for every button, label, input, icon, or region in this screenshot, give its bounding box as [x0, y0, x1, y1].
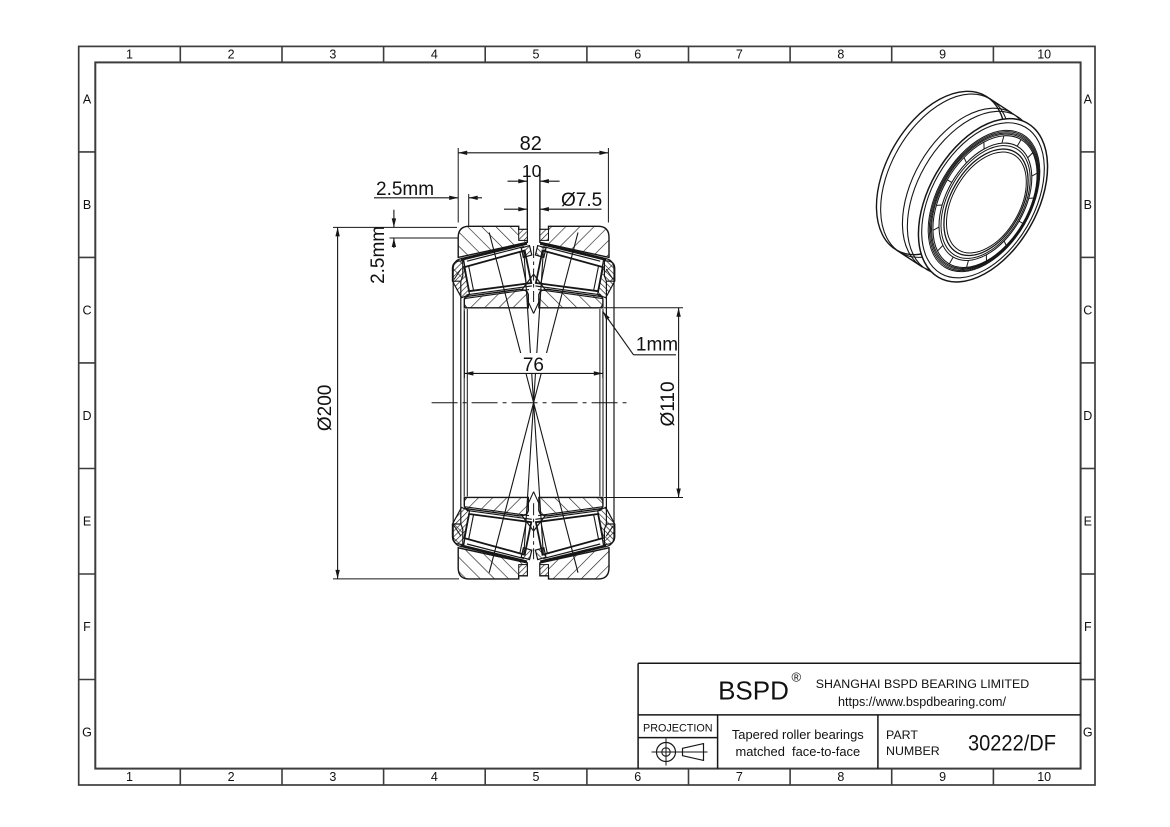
- svg-text:10: 10: [1037, 48, 1051, 62]
- svg-text:1: 1: [126, 770, 133, 784]
- svg-text:https://www.bspdbearing.com/: https://www.bspdbearing.com/: [838, 695, 1006, 709]
- svg-text:3: 3: [329, 48, 336, 62]
- svg-text:E: E: [83, 515, 91, 529]
- svg-text:PART: PART: [886, 728, 918, 742]
- svg-text:1mm: 1mm: [636, 335, 678, 356]
- svg-text:D: D: [1083, 409, 1092, 423]
- svg-text:matched face-to-face: matched face-to-face: [735, 744, 860, 759]
- svg-text:7: 7: [736, 48, 743, 62]
- svg-text:8: 8: [837, 48, 844, 62]
- svg-text:10: 10: [1037, 770, 1051, 784]
- svg-text:3: 3: [329, 770, 336, 784]
- svg-text:®: ®: [792, 670, 802, 685]
- svg-text:2.5mm: 2.5mm: [368, 226, 389, 284]
- svg-text:BSPD: BSPD: [718, 675, 789, 705]
- svg-text:9: 9: [939, 48, 946, 62]
- svg-text:5: 5: [533, 770, 540, 784]
- svg-text:5: 5: [533, 48, 540, 62]
- svg-text:Tapered roller bearings: Tapered roller bearings: [732, 727, 864, 742]
- svg-text:8: 8: [837, 770, 844, 784]
- svg-text:C: C: [82, 304, 91, 318]
- svg-text:G: G: [1083, 726, 1093, 740]
- svg-text:G: G: [82, 726, 92, 740]
- svg-text:6: 6: [634, 48, 641, 62]
- svg-text:2: 2: [228, 48, 235, 62]
- svg-text:B: B: [83, 198, 91, 212]
- svg-text:Ø110: Ø110: [658, 381, 679, 426]
- svg-text:9: 9: [939, 770, 946, 784]
- svg-text:PROJECTION: PROJECTION: [643, 723, 713, 735]
- svg-text:4: 4: [431, 48, 438, 62]
- svg-text:E: E: [1084, 515, 1092, 529]
- svg-text:6: 6: [634, 770, 641, 784]
- svg-text:SHANGHAI BSPD BEARING LIMITED: SHANGHAI BSPD BEARING LIMITED: [816, 677, 1029, 691]
- svg-text:C: C: [1083, 304, 1092, 318]
- svg-text:Ø200: Ø200: [315, 385, 336, 431]
- svg-text:A: A: [83, 93, 92, 107]
- svg-text:30222/DF: 30222/DF: [968, 730, 1056, 755]
- svg-text:2.5mm: 2.5mm: [376, 179, 434, 200]
- svg-text:1: 1: [126, 48, 133, 62]
- svg-text:10: 10: [522, 161, 542, 181]
- svg-text:7: 7: [736, 770, 743, 784]
- svg-text:NUMBER: NUMBER: [886, 744, 940, 758]
- svg-text:D: D: [82, 409, 91, 423]
- svg-text:F: F: [83, 620, 91, 634]
- svg-text:2: 2: [228, 770, 235, 784]
- svg-text:82: 82: [520, 133, 542, 155]
- svg-text:F: F: [1084, 620, 1092, 634]
- svg-text:B: B: [1084, 198, 1092, 212]
- svg-text:4: 4: [431, 770, 438, 784]
- svg-text:A: A: [1084, 93, 1093, 107]
- svg-text:Ø7.5: Ø7.5: [561, 190, 602, 211]
